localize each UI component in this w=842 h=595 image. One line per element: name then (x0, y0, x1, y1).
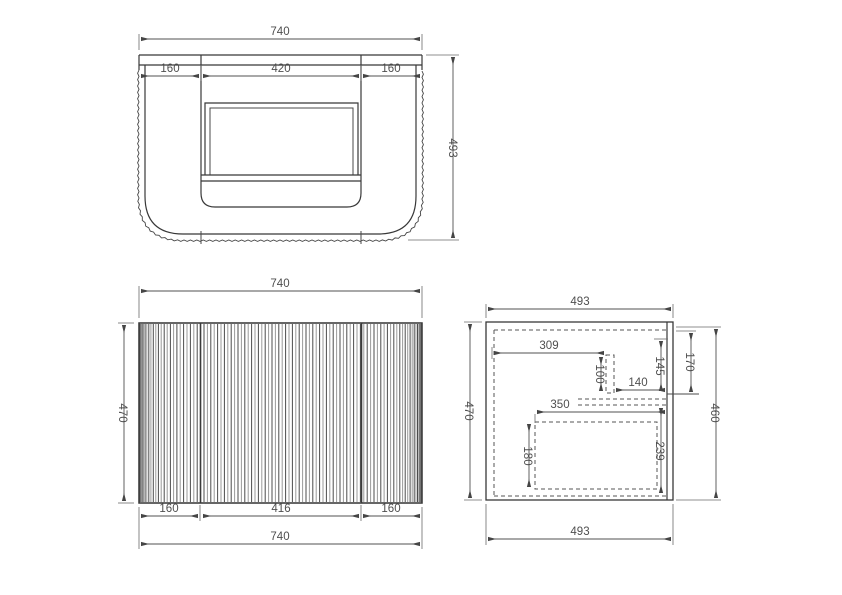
dim-label-front-bottom-right: 160 (381, 503, 400, 515)
dim-label-side-height-left: 470 (462, 401, 474, 420)
dim-label-side-bracket-height: 100 (593, 364, 605, 383)
dim-label-side-drawer-depth: 350 (550, 399, 569, 411)
dim-label-front-bottom-center: 416 (271, 503, 290, 515)
dim-label-side-depth-bottom: 493 (570, 526, 589, 538)
plan-inner-contour (145, 65, 416, 234)
plan-fluted-outer-edge (138, 70, 424, 241)
dim-label-side-rail-height: 145 (653, 356, 665, 375)
plan-view: 740 160 420 160 493 (138, 26, 459, 244)
dim-label-front-height: 470 (116, 403, 128, 422)
dim-label-plan-overall-depth: 493 (446, 138, 458, 157)
front-view: 740 470 160 416 160 740 (116, 278, 422, 549)
plan-dimensions: 740 160 420 160 493 (139, 26, 459, 240)
side-outline (486, 322, 673, 500)
side-bracket-hidden (606, 355, 614, 393)
plan-basin-cutout (201, 65, 361, 207)
side-dimensions: 493 470 460 493 309 100 140 145 (462, 296, 721, 545)
side-view: 493 470 460 493 309 100 140 145 (462, 296, 721, 545)
dim-label-front-bottom-left: 160 (159, 503, 178, 515)
dim-label-side-lower-back-height: 239 (653, 441, 665, 460)
dim-label-front-width-top: 740 (270, 278, 289, 290)
dim-label-side-bracket-offset: 309 (539, 340, 558, 352)
technical-drawing-svg: 740 160 420 160 493 740 (0, 0, 842, 595)
dim-label-plan-right-section: 160 (381, 63, 400, 75)
front-outline (139, 323, 422, 503)
plan-scalloped-edge (138, 70, 424, 241)
dim-label-front-width-bottom: 740 (270, 531, 289, 543)
front-flute-texture (139, 324, 422, 502)
dim-label-plan-center-section: 420 (271, 63, 290, 75)
dim-label-side-height-right: 460 (708, 403, 720, 422)
plan-outer-base-path (139, 70, 422, 240)
side-hidden-lines (494, 330, 666, 496)
side-drawer-hidden (535, 422, 657, 489)
dim-label-side-top-clearance: 170 (683, 352, 695, 371)
dim-label-plan-left-section: 160 (160, 63, 179, 75)
dim-label-side-depth-top: 493 (570, 296, 589, 308)
dim-label-plan-overall-width: 740 (270, 26, 289, 38)
dim-label-side-bracket-to-back: 140 (628, 377, 647, 389)
drawing-sheet: 740 160 420 160 493 740 (0, 0, 842, 595)
dim-label-side-drawer-height: 180 (521, 446, 533, 465)
